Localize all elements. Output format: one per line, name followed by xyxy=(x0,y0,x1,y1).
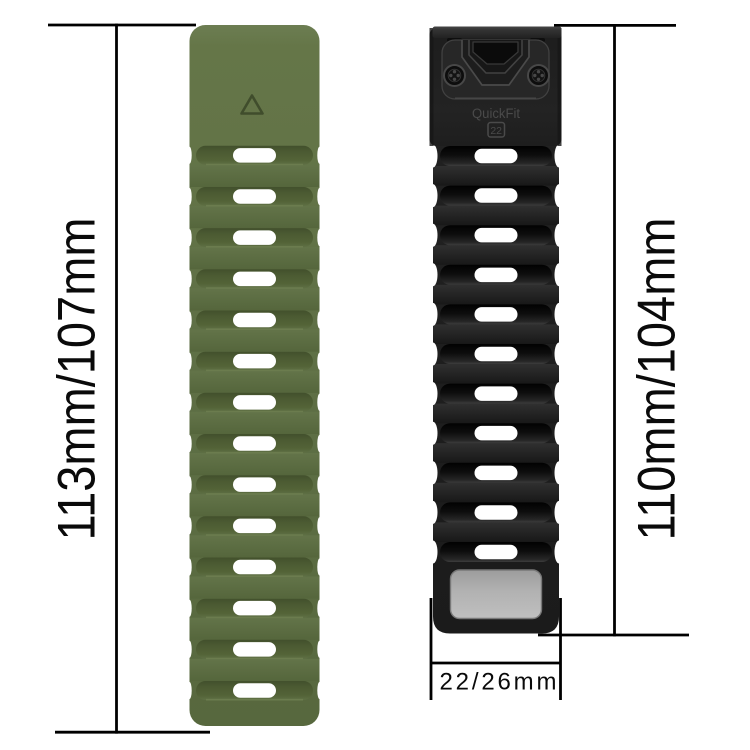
svg-text:QuickFit: QuickFit xyxy=(472,106,520,121)
svg-text:22/26mm: 22/26mm xyxy=(440,669,557,696)
svg-text:113mm/107mm: 113mm/107mm xyxy=(48,218,107,541)
svg-text:110mm/104mm: 110mm/104mm xyxy=(628,218,687,541)
svg-text:22: 22 xyxy=(490,125,502,137)
